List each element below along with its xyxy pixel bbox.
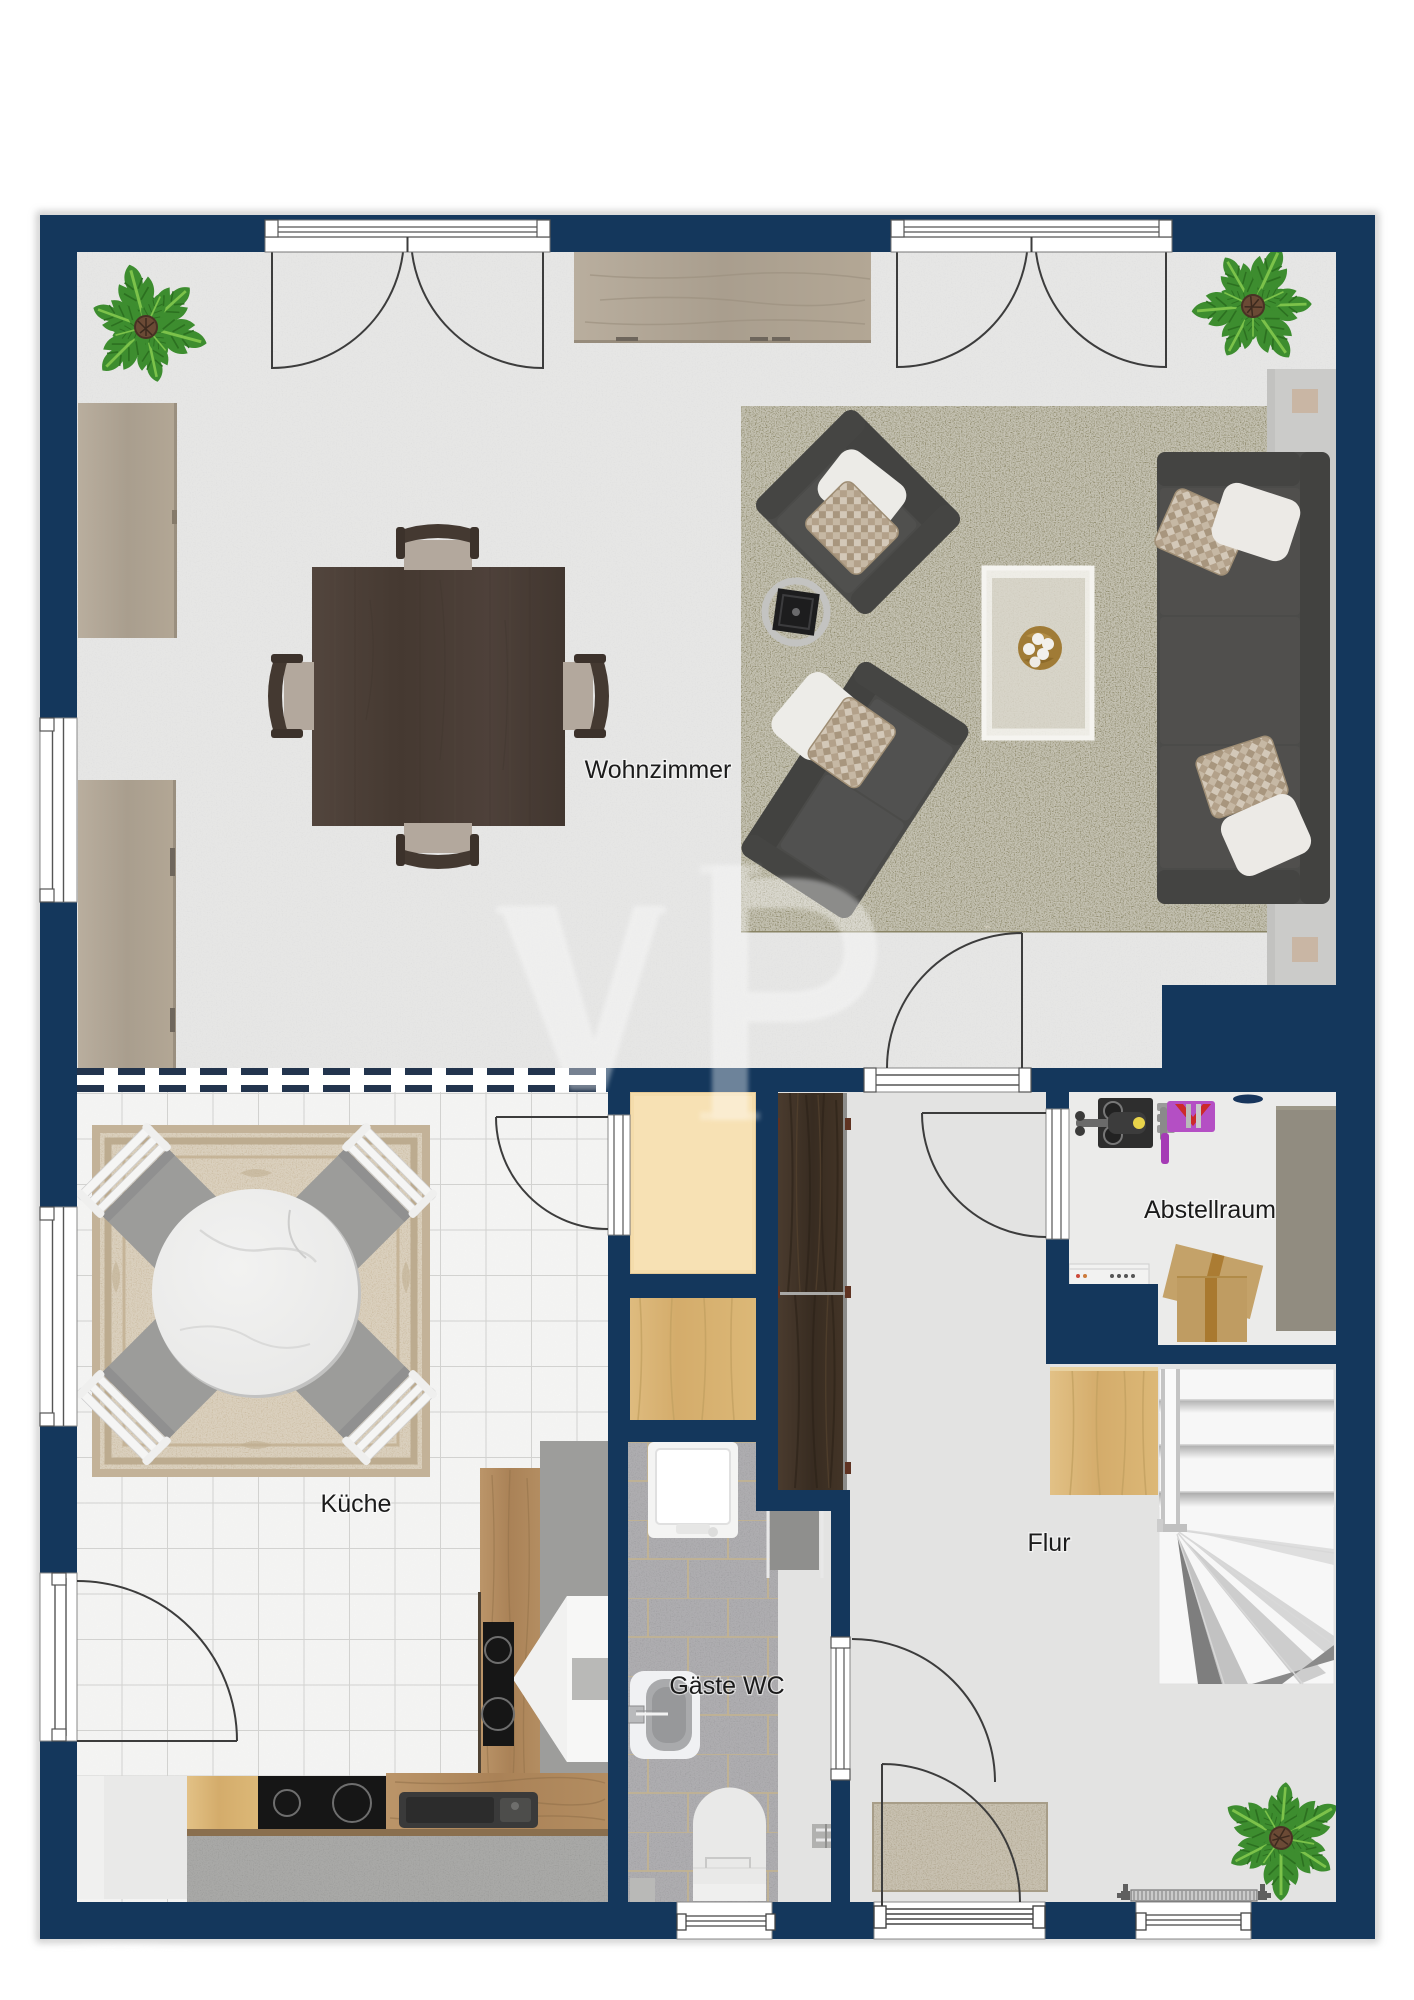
svg-text:Wohnzimmer: Wohnzimmer <box>585 756 732 784</box>
svg-text:Abstellraum: Abstellraum <box>1144 1196 1276 1224</box>
svg-text:Gäste WC: Gäste WC <box>669 1672 784 1700</box>
svg-text:Flur: Flur <box>1027 1529 1070 1557</box>
svg-text:Küche: Küche <box>321 1490 392 1518</box>
